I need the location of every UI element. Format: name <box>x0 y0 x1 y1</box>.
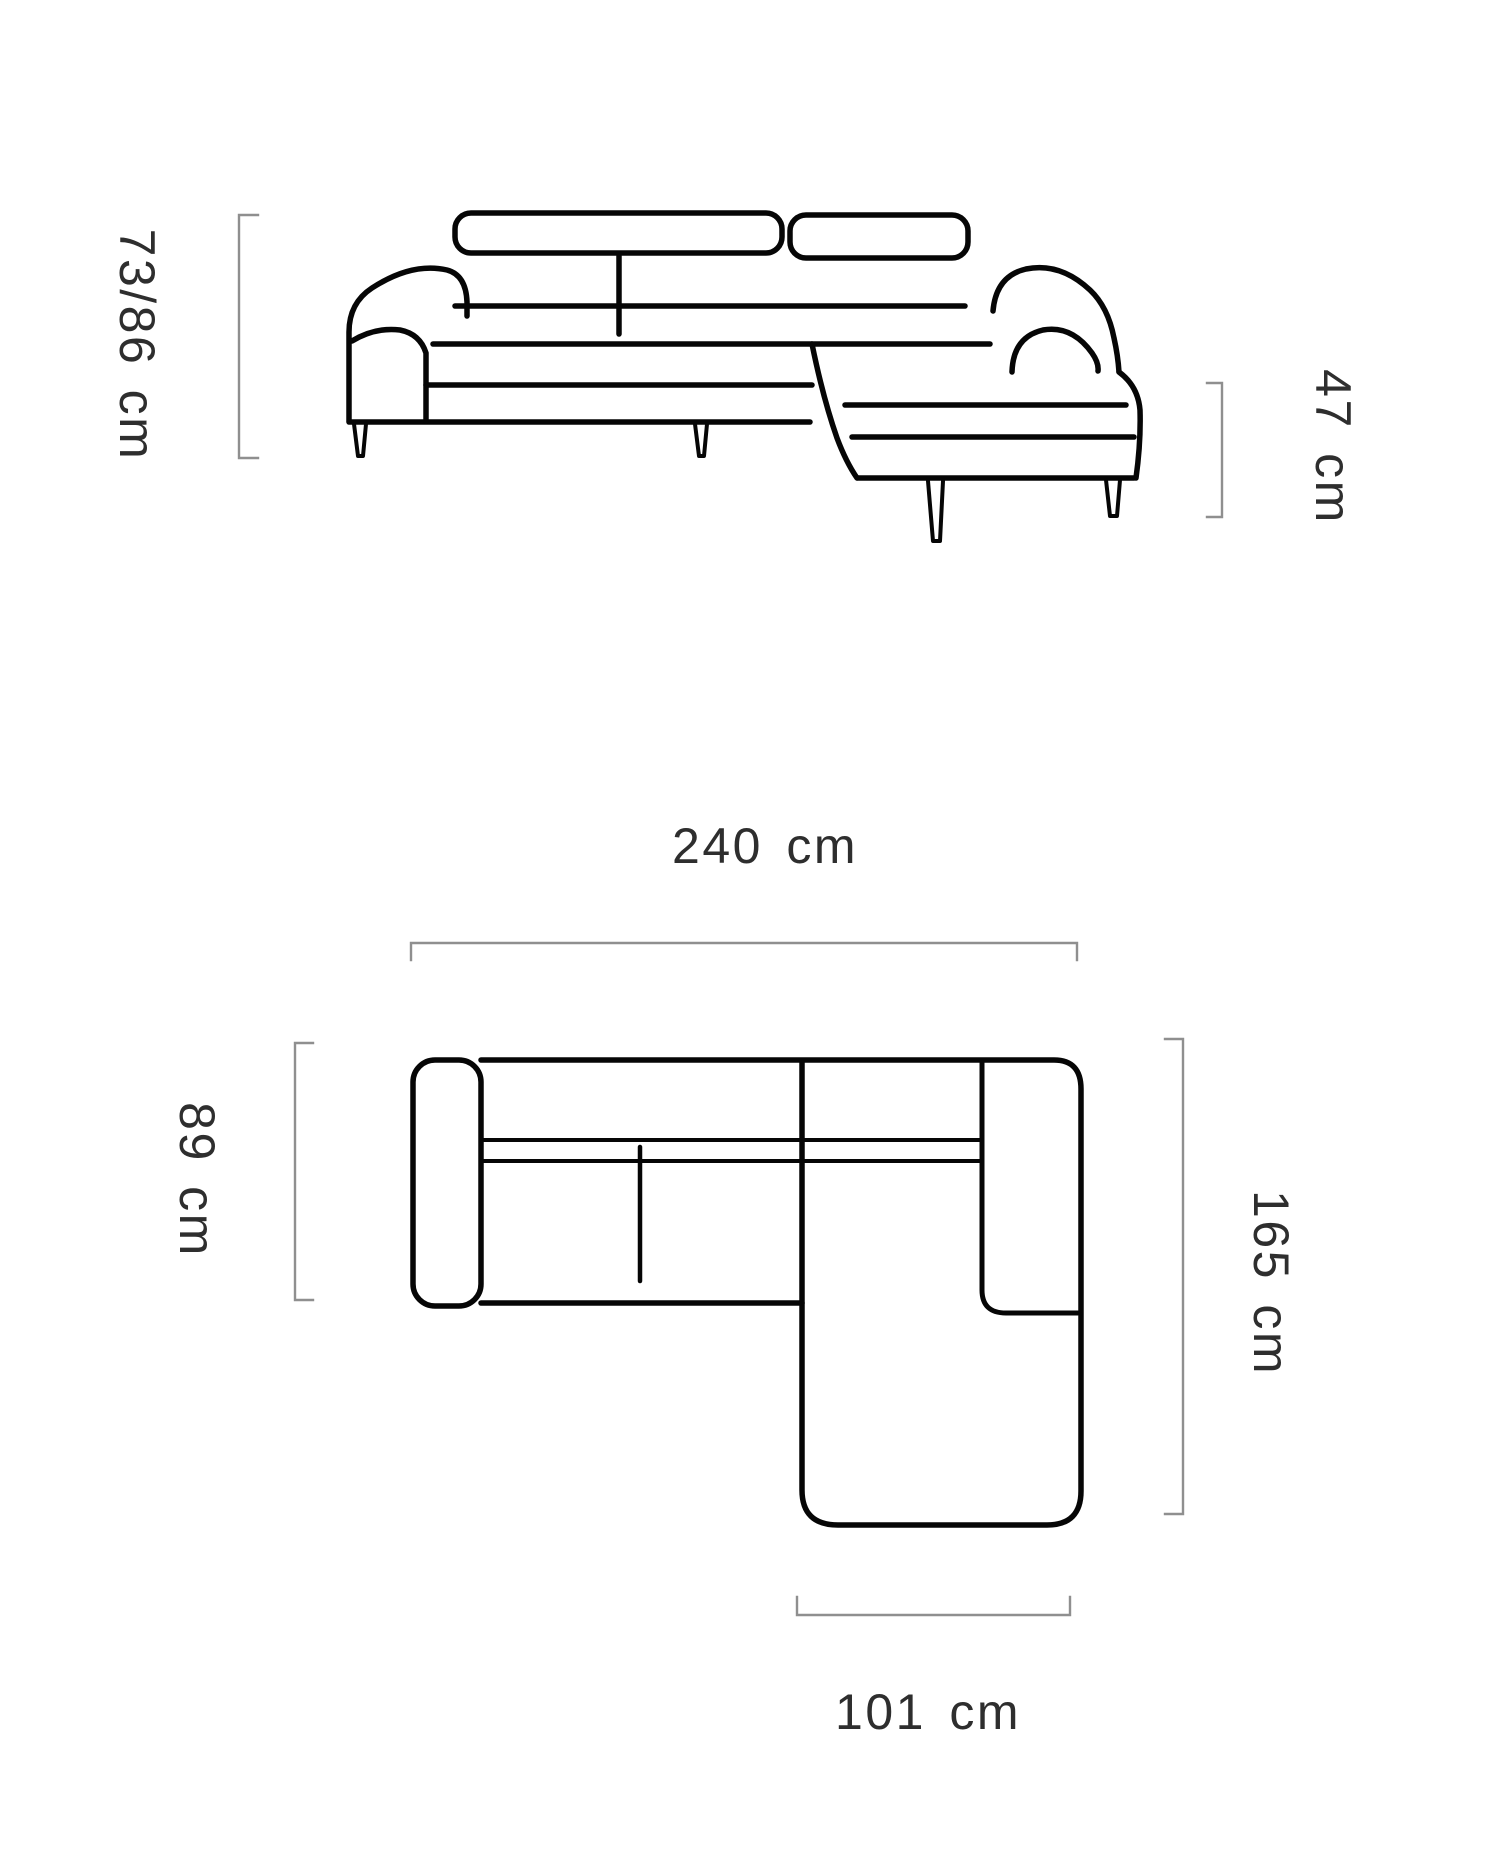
width-dimension-bracket <box>411 943 1077 960</box>
total-depth-dimension-bracket <box>1165 1039 1183 1514</box>
dimension-label-seat-height: 47 cm <box>1304 369 1362 525</box>
side-right-armrest-cushion <box>1012 329 1098 372</box>
top-view-drawing <box>413 1060 1081 1525</box>
dimension-label-total-depth: 165 cm <box>1242 1190 1300 1376</box>
dimension-label-chaise-width: 101 cm <box>835 1683 1021 1741</box>
side-leg-left <box>354 424 366 456</box>
sofa-dimensions-diagram: 73/86 cm 47 cm 240 cm 89 cm 165 cm 101 c… <box>0 0 1500 1852</box>
plan-left-armrest <box>413 1060 481 1306</box>
height-dimension-bracket <box>239 215 258 458</box>
diagram-line-art <box>0 0 1500 1852</box>
side-chaise-right-edge <box>1119 372 1140 478</box>
side-leg-chaise-left <box>928 481 943 541</box>
side-sofa-legs <box>354 424 1120 541</box>
side-view-drawing <box>349 213 1140 541</box>
side-leg-mid <box>695 424 707 456</box>
dimension-label-total-width: 240 cm <box>672 817 858 875</box>
dimension-brackets <box>239 215 1222 1615</box>
chaise-width-dimension-bracket <box>797 1597 1070 1615</box>
dimension-label-body-depth: 89 cm <box>168 1102 226 1258</box>
side-chaise-front-diagonal <box>812 344 857 478</box>
side-headrest-left <box>455 213 782 253</box>
side-leg-chaise-right <box>1106 480 1120 516</box>
side-headrest-right <box>790 215 968 258</box>
plan-right-armrest <box>982 1060 1078 1313</box>
plan-outer-boundary <box>481 1060 1081 1525</box>
depth-dimension-bracket <box>295 1043 313 1300</box>
seat-height-dimension-bracket <box>1207 383 1222 517</box>
dimension-label-height: 73/86 cm <box>108 229 166 462</box>
